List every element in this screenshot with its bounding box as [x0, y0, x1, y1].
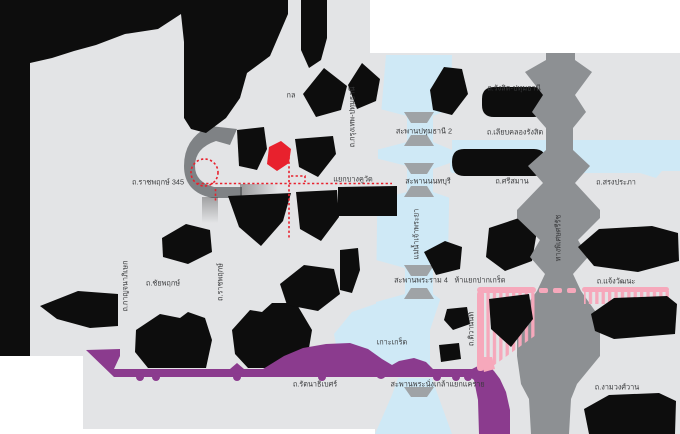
pink-dashes-over-expressway — [539, 288, 576, 293]
location-map: ถ.ราชพฤกษ์ 345แยกบางคูวัดถ.กรุงเทพ-ปทุมธ… — [0, 0, 680, 434]
map-canvas — [0, 0, 680, 434]
